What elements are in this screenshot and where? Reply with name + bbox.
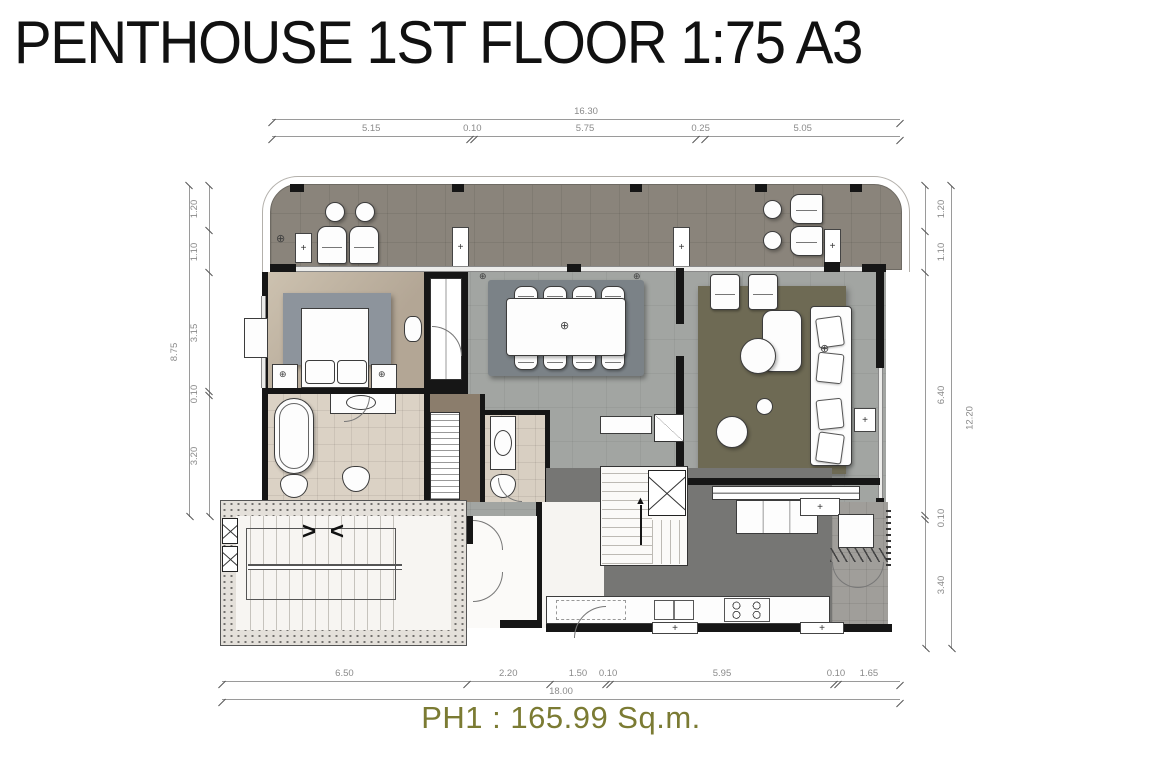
shaft [222, 546, 238, 572]
sofa [810, 306, 852, 466]
ceiling-symbol [820, 344, 829, 355]
lounge-chair [790, 226, 823, 256]
ceiling-symbol [560, 321, 569, 332]
wall-segment [630, 184, 642, 192]
stove [724, 598, 770, 622]
sofa-cushion [816, 398, 845, 431]
bathtub [274, 398, 314, 474]
ceiling-symbol [633, 272, 641, 281]
wall-segment [262, 388, 430, 394]
stair-direction-chevron: < [330, 520, 344, 544]
stair-treads [652, 520, 686, 564]
armchair [748, 274, 778, 310]
stair-direction-line [640, 505, 642, 545]
round-chair [716, 416, 748, 448]
side-table [355, 202, 375, 222]
folding-door [830, 548, 888, 562]
column-marker [800, 498, 840, 516]
wall-segment [755, 184, 767, 192]
wall-segment [680, 478, 880, 485]
lounge-chair [317, 226, 347, 264]
column-marker [452, 227, 469, 267]
pillow [337, 360, 367, 384]
window-marker [800, 622, 844, 634]
stair-treads [602, 468, 652, 564]
sink-basin [494, 430, 512, 456]
entry-closet [600, 416, 652, 434]
wall-segment [452, 184, 464, 192]
small-side-table [756, 398, 773, 415]
bathtub-inner [279, 403, 309, 469]
lounge-chair [349, 226, 379, 264]
side-table [763, 231, 782, 250]
stair-path [246, 528, 396, 600]
wall-segment [424, 394, 430, 502]
pillow [305, 360, 335, 384]
sofa-cushion [816, 352, 845, 385]
vent-strip [886, 506, 891, 566]
armchair [710, 274, 740, 310]
entry-closet [654, 414, 684, 442]
stair-arrow: ▲ [635, 496, 646, 507]
window-marker [652, 622, 698, 634]
kitchen-sink [654, 600, 694, 620]
ceiling-symbol [378, 370, 386, 379]
column-marker [673, 227, 690, 267]
wall-segment [876, 272, 884, 368]
wall-segment [850, 184, 862, 192]
wall-segment [484, 410, 550, 415]
desk-chair [404, 316, 422, 342]
area-label: PH1 : 165.99 Sq.m. [222, 700, 900, 736]
stair-direction-chevron: > [302, 520, 316, 544]
side-table [325, 202, 345, 222]
wall-segment [676, 268, 684, 324]
column-marker [295, 233, 312, 263]
ceiling-symbol [479, 272, 487, 281]
sofa-cushion [815, 431, 845, 464]
ceiling-symbol [279, 370, 287, 379]
column-marker [854, 408, 876, 432]
lounge-chair [790, 194, 823, 224]
side-table [763, 200, 782, 219]
ceiling-symbol [276, 234, 285, 245]
closet-shelves [430, 412, 460, 500]
washing-machine [838, 514, 874, 548]
elevator-shaft [648, 470, 686, 516]
wall-segment [290, 184, 304, 192]
round-table [740, 338, 776, 374]
window-bay [244, 318, 268, 358]
floor-plan: ▲ > < [0, 0, 1149, 773]
column-marker [824, 229, 841, 263]
wall-segment [500, 620, 537, 628]
shaft [222, 518, 238, 544]
